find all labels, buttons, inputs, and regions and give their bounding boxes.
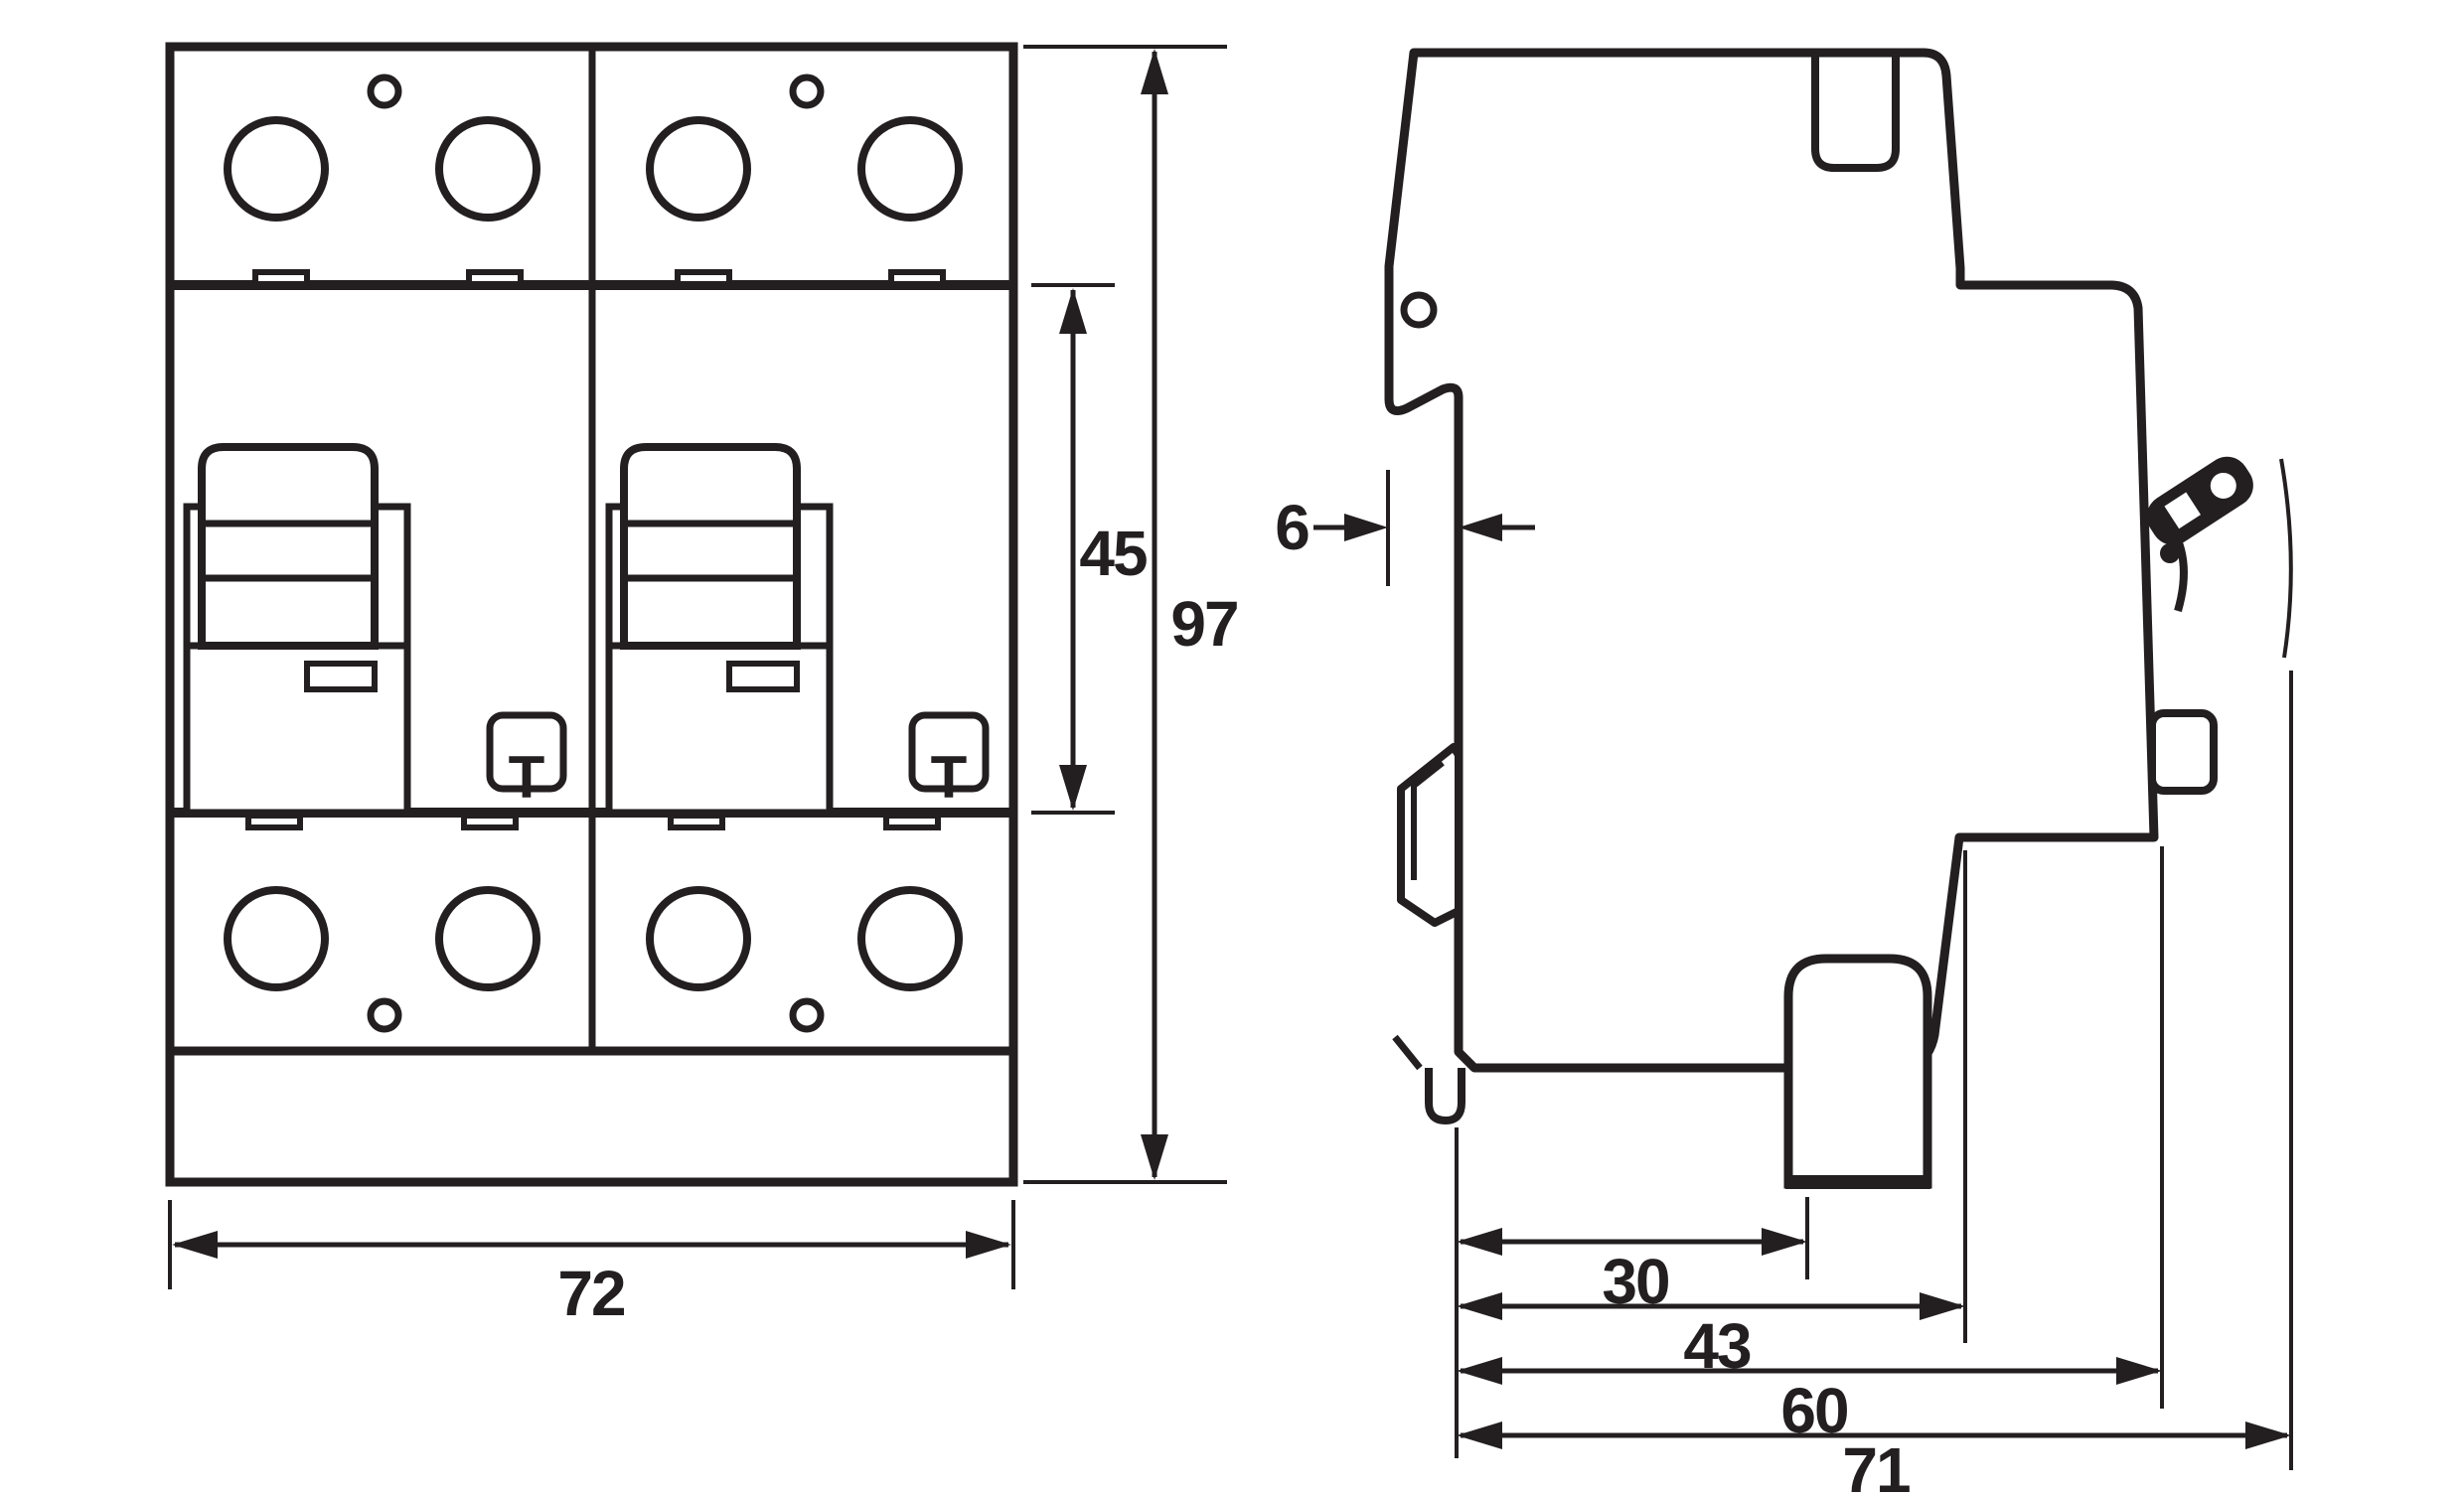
- front-view: T T: [170, 47, 1013, 1182]
- dimension-drawing: T T: [0, 0, 2464, 1496]
- lever-body: [2138, 448, 2261, 553]
- dim-height-label: 97: [1170, 588, 1237, 660]
- arrowhead-right: [1344, 514, 1388, 541]
- arrowhead-left: [1457, 1228, 1502, 1256]
- arrowhead-down: [1059, 765, 1087, 811]
- switch-toggle-handle: [624, 447, 797, 646]
- switch-left-module: [187, 447, 407, 813]
- arrowhead-left: [1457, 1292, 1502, 1320]
- toggle-lever: [2138, 448, 2290, 658]
- side-view: [1389, 51, 2291, 1184]
- side-terminal-tab: [2152, 713, 2214, 791]
- arrowhead-right: [2245, 1421, 2291, 1449]
- arrowhead-up: [1059, 288, 1087, 334]
- test-button-letter: T: [931, 744, 968, 811]
- dim-rail-recess-label: 6: [1275, 492, 1309, 563]
- arrowhead-left: [172, 1231, 218, 1259]
- arrowhead-left: [1457, 1357, 1502, 1385]
- arrowhead-left: [1457, 1421, 1502, 1449]
- lever-boss: [2160, 543, 2180, 563]
- arrowhead-right: [1762, 1228, 1807, 1256]
- arrowhead-right: [966, 1231, 1011, 1259]
- arrowhead-up: [1141, 49, 1168, 94]
- dim-depth-71: 71: [1457, 1421, 2291, 1496]
- side-body-outline: [1389, 53, 2154, 1068]
- dim-module-height-label: 45: [1079, 518, 1147, 589]
- left-foot: [1429, 1068, 1462, 1121]
- switch-right-module: [609, 447, 830, 813]
- pin-hole: [1404, 295, 1434, 325]
- dim-width: 72: [170, 1200, 1013, 1329]
- dim-height: 97: [1023, 47, 1238, 1182]
- mounting-foot: [1788, 959, 1927, 1184]
- drawing-page: T T: [0, 0, 2464, 1496]
- switch-toggle-handle: [202, 447, 375, 646]
- din-rail-clip-tail: [1395, 1037, 1420, 1068]
- test-button-letter: T: [509, 744, 545, 811]
- label-window: [729, 664, 797, 689]
- arrowhead-right: [1920, 1292, 1965, 1320]
- dim-width-label: 72: [557, 1258, 625, 1329]
- lever-motion-arc: [2281, 459, 2291, 658]
- arrowhead-down: [1141, 1134, 1168, 1180]
- dim-depth-71-label: 71: [1842, 1434, 1910, 1496]
- label-window: [307, 664, 375, 689]
- arrowhead-right: [2116, 1357, 2162, 1385]
- dim-module-height: 45: [1031, 285, 1147, 813]
